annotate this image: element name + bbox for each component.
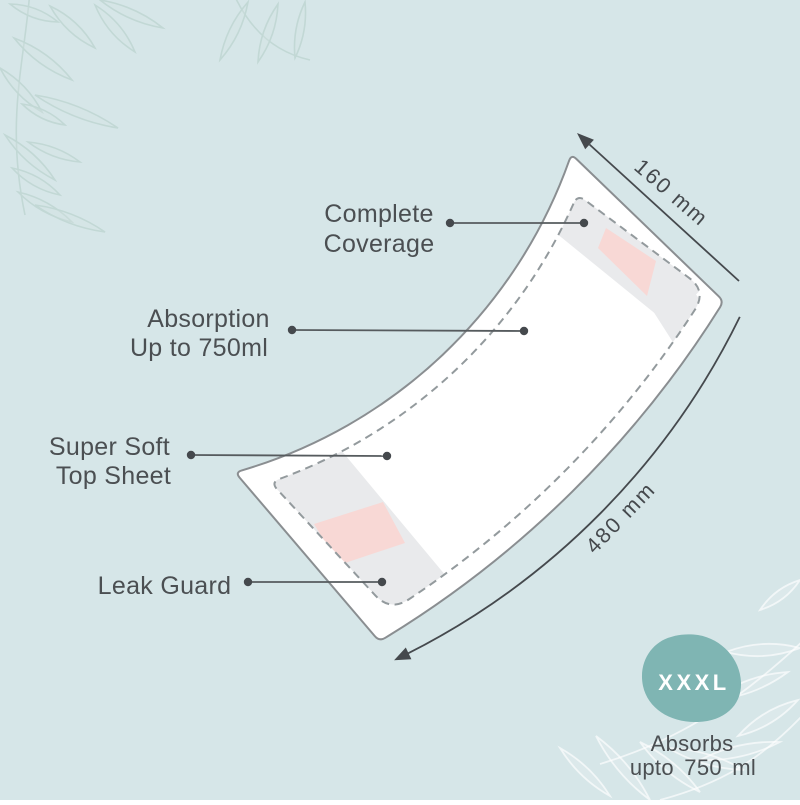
svg-text:Complete: Complete — [324, 200, 433, 228]
svg-text:Leak Guard: Leak Guard — [98, 572, 232, 600]
svg-text:Coverage: Coverage — [324, 230, 435, 258]
svg-text:Absorbs: Absorbs — [651, 731, 734, 756]
svg-text:Up to 750ml: Up to 750ml — [130, 334, 268, 362]
svg-text:Top Sheet: Top Sheet — [56, 462, 171, 490]
svg-text:Super Soft: Super Soft — [49, 433, 170, 461]
svg-text:Absorption: Absorption — [147, 305, 270, 333]
svg-text:upto 750 ml: upto 750 ml — [630, 755, 756, 780]
svg-text:XXXL: XXXL — [658, 670, 729, 695]
